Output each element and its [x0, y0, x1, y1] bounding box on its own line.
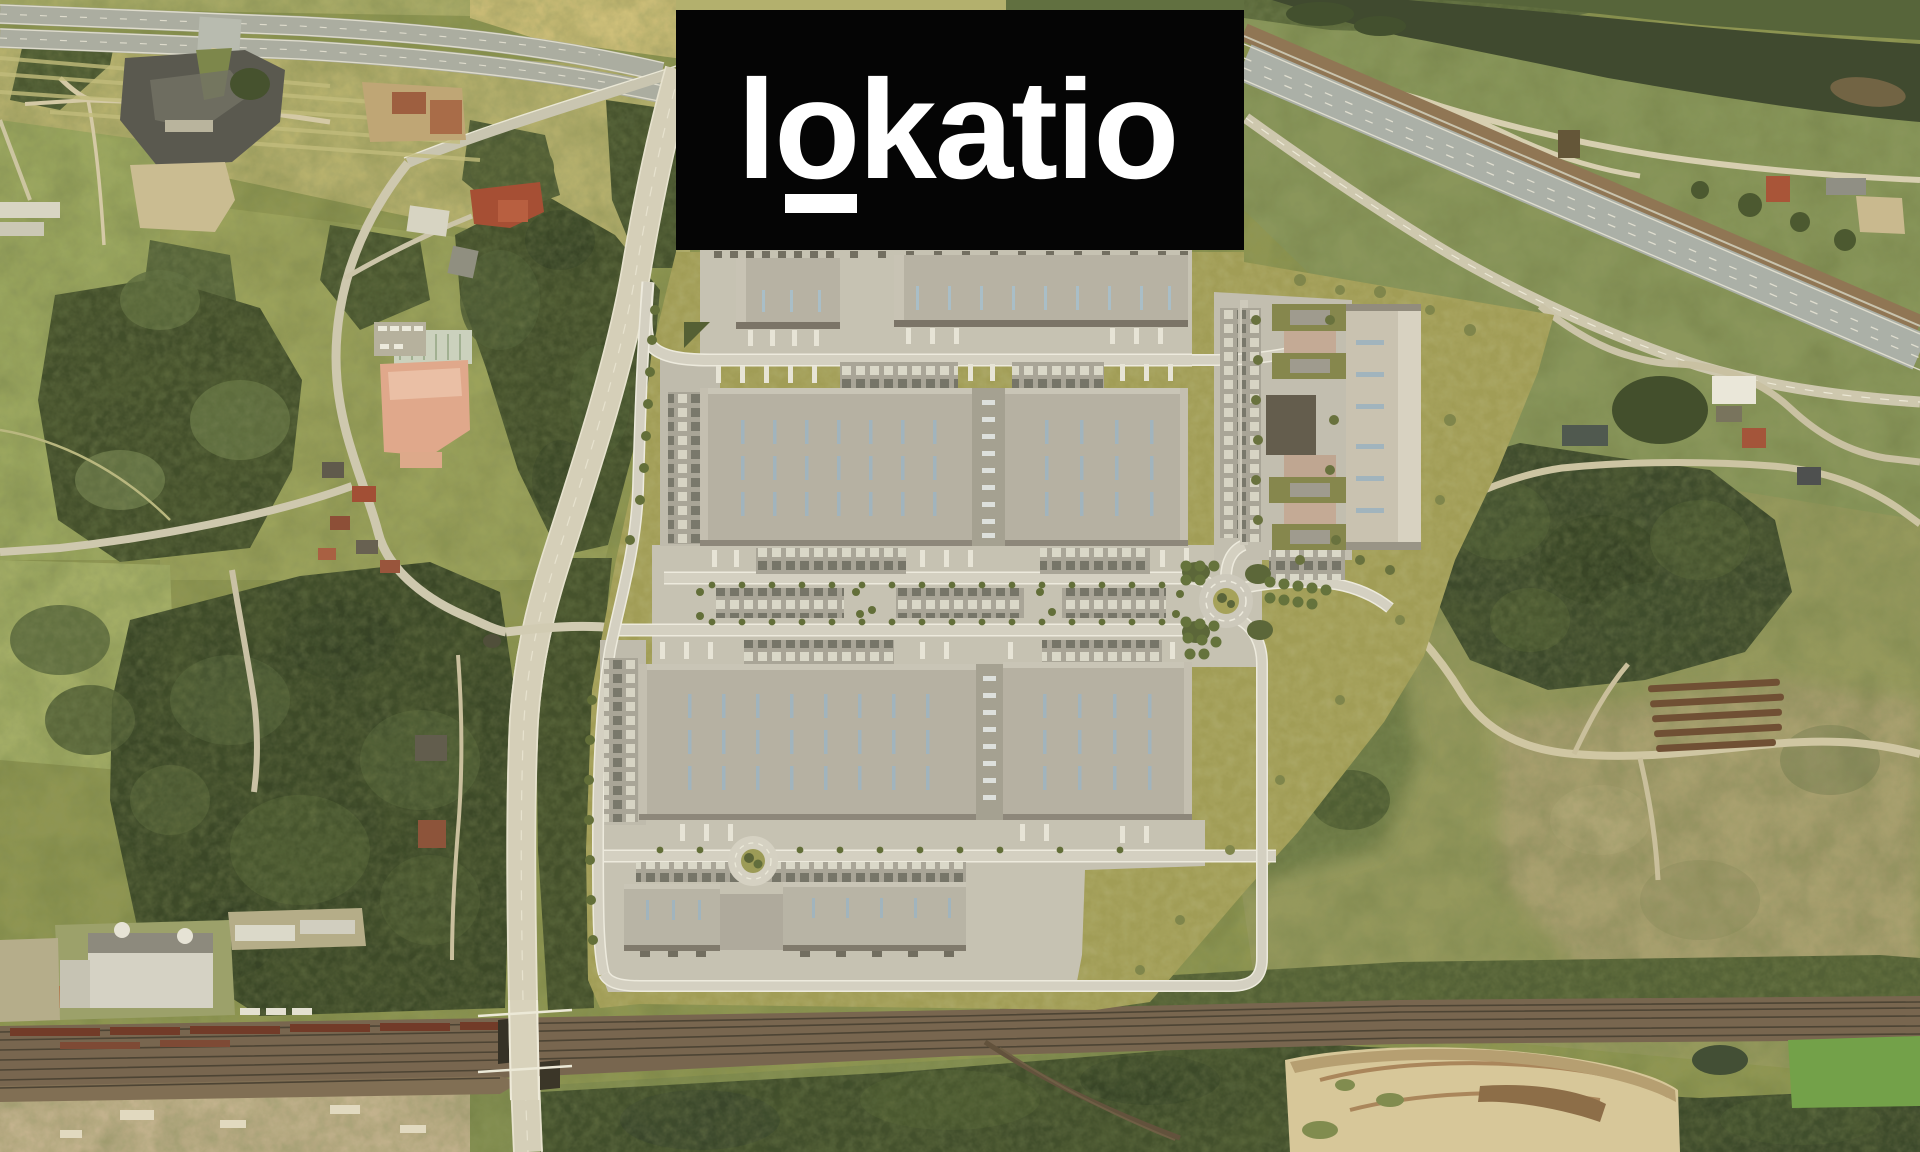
- svg-text:lokatio: lokatio: [737, 50, 1177, 208]
